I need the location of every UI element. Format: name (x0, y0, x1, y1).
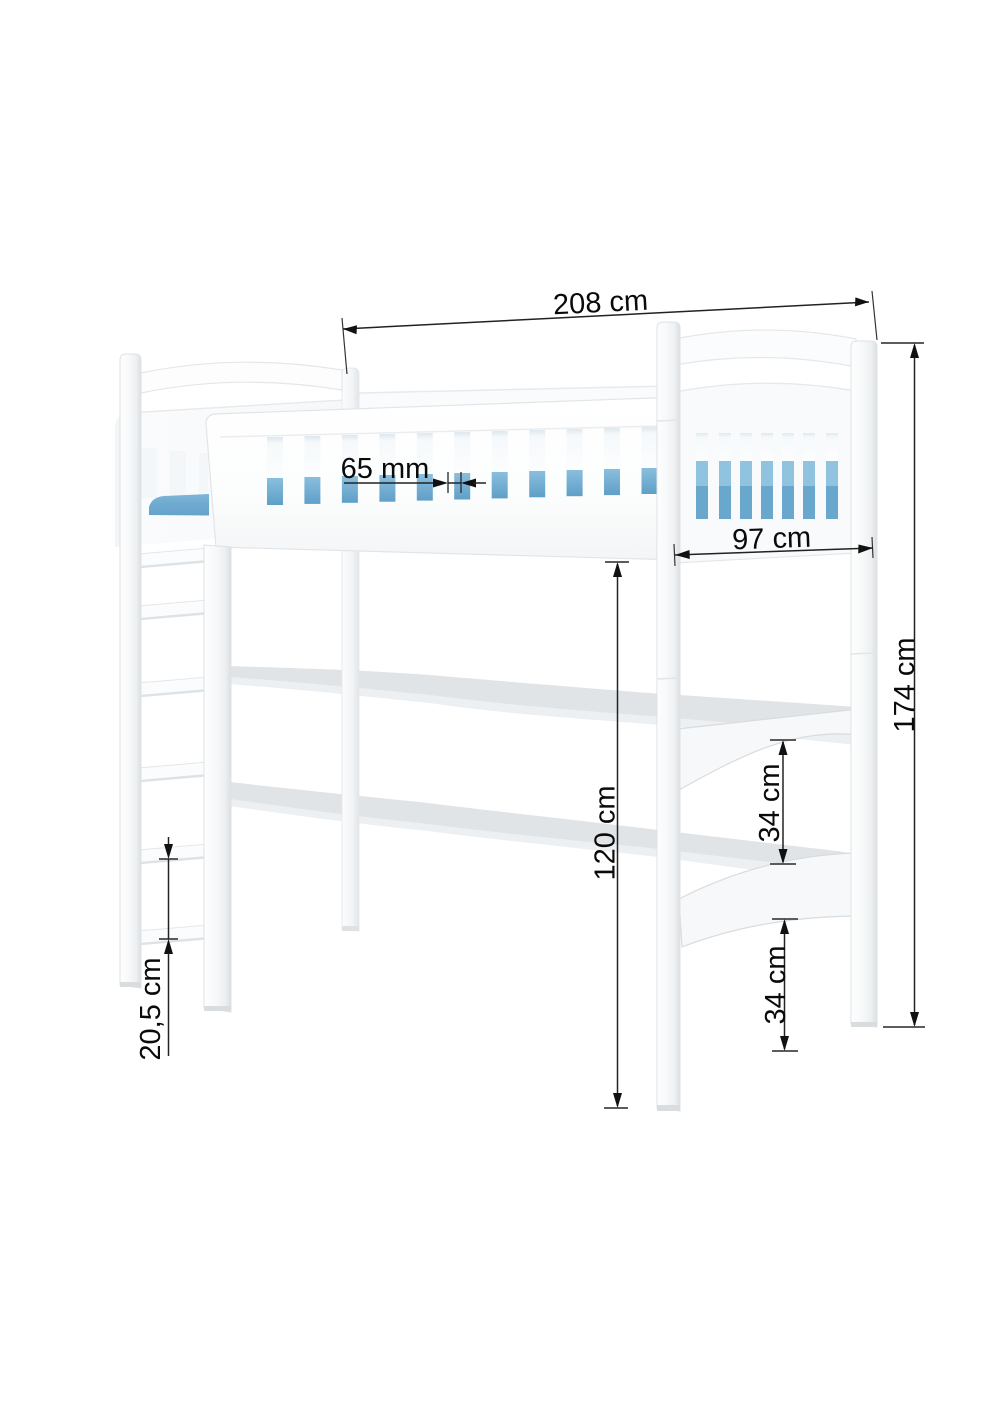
svg-text:34 cm: 34 cm (754, 764, 786, 843)
svg-text:174 cm: 174 cm (889, 637, 921, 732)
svg-text:65 mm: 65 mm (341, 453, 430, 485)
svg-text:97 cm: 97 cm (732, 522, 812, 557)
svg-text:208 cm: 208 cm (552, 285, 649, 322)
svg-text:120 cm: 120 cm (590, 785, 622, 880)
svg-text:34 cm: 34 cm (760, 946, 792, 1025)
svg-text:20,5 cm: 20,5 cm (135, 957, 167, 1060)
